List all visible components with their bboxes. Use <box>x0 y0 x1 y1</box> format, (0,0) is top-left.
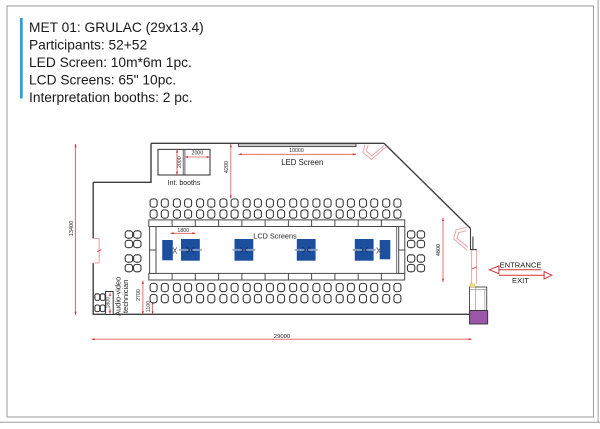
svg-text:4200: 4200 <box>224 161 230 173</box>
svg-text:13400: 13400 <box>69 221 75 236</box>
svg-text:2000: 2000 <box>192 150 204 156</box>
svg-text:Interpretation booths: 2 pc.: Interpretation booths: 2 pc. <box>29 90 193 105</box>
svg-text:LCD Screens: LCD Screens <box>253 232 297 241</box>
svg-text:LCD Screens: 65" 10pc.: LCD Screens: 65" 10pc. <box>29 73 176 88</box>
svg-text:4800: 4800 <box>436 244 442 256</box>
svg-text:technician: technician <box>121 280 130 313</box>
svg-text:LED Screen: LED Screen <box>281 158 323 167</box>
svg-text:1800: 1800 <box>106 297 112 309</box>
svg-text:10000: 10000 <box>289 148 304 154</box>
svg-text:ENTRANCE: ENTRANCE <box>500 261 542 270</box>
svg-text:29000: 29000 <box>274 334 291 340</box>
svg-text:2000: 2000 <box>177 156 183 168</box>
svg-text:Int. booths: Int. booths <box>168 180 201 187</box>
svg-text:Participants: 52+52: Participants: 52+52 <box>29 38 147 53</box>
svg-text:LED Screen: 10m*6m 1pc.: LED Screen: 10m*6m 1pc. <box>29 55 192 70</box>
svg-text:MET 01: GRULAC (29x13.4): MET 01: GRULAC (29x13.4) <box>29 20 204 35</box>
svg-text:EXIT: EXIT <box>512 276 529 285</box>
svg-text:2700: 2700 <box>136 289 142 301</box>
svg-text:1800: 1800 <box>177 228 189 234</box>
